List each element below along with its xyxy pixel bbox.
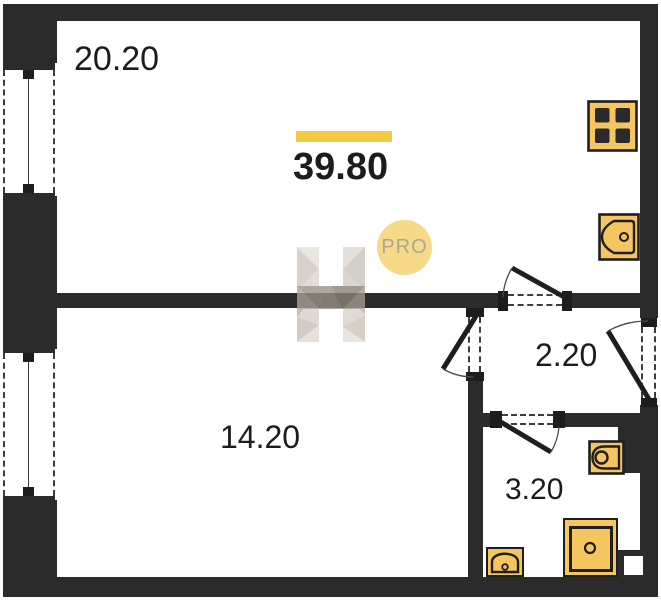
door-leaf bbox=[512, 268, 566, 298]
total-area-bar bbox=[296, 131, 392, 142]
total-area-label: 39.80 bbox=[293, 146, 388, 189]
pro-badge: PRO bbox=[377, 220, 432, 275]
door-leaf bbox=[608, 331, 650, 401]
door-swing-arc bbox=[608, 321, 648, 331]
door-leaf bbox=[443, 316, 476, 369]
stove-icon bbox=[587, 100, 638, 152]
door-swing-arc bbox=[443, 369, 474, 377]
room-label-bathroom: 3.20 bbox=[505, 473, 563, 507]
room-label-hallway: 2.20 bbox=[535, 337, 597, 374]
door-swing-arc bbox=[503, 268, 512, 297]
room-label-living: 20.20 bbox=[74, 40, 159, 79]
toilet-icon bbox=[588, 440, 625, 475]
door-swing-arc bbox=[551, 427, 559, 452]
floorplan: PRO 39.80 20.20 14.20 2.20 3.20 bbox=[0, 0, 661, 600]
pro-badge-label: PRO bbox=[381, 236, 427, 259]
h-logo-watermark-icon bbox=[297, 245, 365, 344]
door-leaf bbox=[499, 421, 551, 452]
room-label-bedroom: 14.20 bbox=[220, 419, 300, 456]
washing-machine-icon bbox=[563, 518, 618, 577]
kitchen-sink-icon bbox=[598, 213, 640, 261]
bath-sink-icon bbox=[486, 547, 524, 577]
